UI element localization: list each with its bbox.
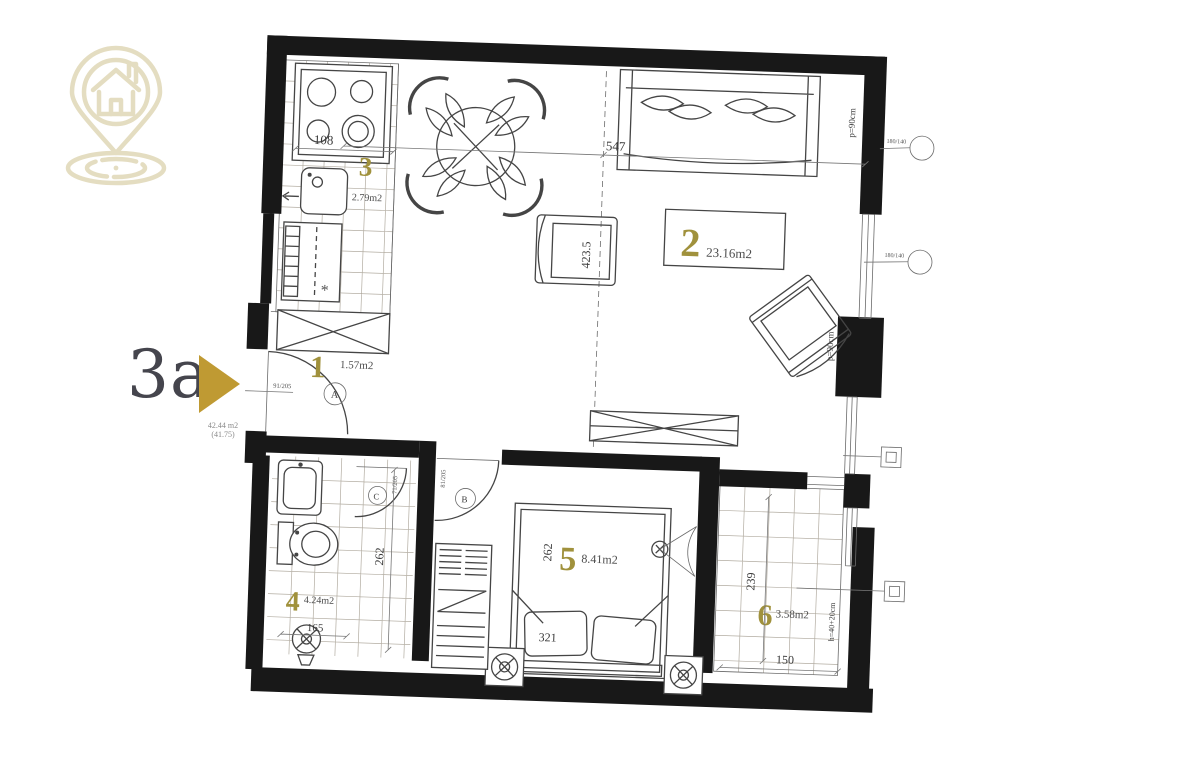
- room-4-area: 4.24m2: [304, 595, 335, 607]
- svg-text:*: *: [320, 282, 329, 299]
- window-tag-2-label: 180/140: [884, 253, 904, 260]
- dim-bed-depth: 262: [540, 543, 555, 561]
- dim-kitchen-counter: 108: [314, 132, 334, 148]
- dim-bath-width: 165: [307, 622, 324, 635]
- room-2-number: 2: [680, 220, 702, 266]
- sofa-icon: [617, 70, 820, 177]
- room-3-area: 2.79m2: [352, 192, 383, 204]
- detail-square-callout-1: [843, 446, 902, 468]
- room-5-number: 5: [559, 541, 577, 579]
- window-tag-1-label: 180/140: [886, 139, 906, 146]
- wardrobe-x-box: [277, 310, 390, 354]
- nightstand-right-icon: [664, 655, 703, 694]
- door-b-size: 81/205: [440, 469, 448, 487]
- door-c-size: 71/205: [392, 476, 400, 494]
- bath-door-arc: C 71/205: [355, 467, 407, 519]
- parapet-top-label: p=90cm: [846, 108, 857, 138]
- floor-plan-page: 3a 42.44 m2 (41.75): [0, 0, 1200, 776]
- room-2-area: 23.16m2: [706, 245, 752, 262]
- room-1-number: 1: [309, 349, 326, 385]
- parapet-right-label: p=90cm: [824, 331, 835, 361]
- bedroom-door-arc: B 81/205: [435, 458, 499, 522]
- room-4-number: 4: [285, 586, 300, 617]
- toilet-icon: [277, 522, 338, 566]
- dining-table-icon: [396, 67, 555, 226]
- room-3-number: 3: [358, 152, 373, 182]
- kitchen: *: [279, 63, 392, 304]
- room-5-area: 8.41m2: [581, 552, 618, 567]
- door-c-mark: C: [373, 491, 379, 501]
- dim-bath-depth: 262: [372, 547, 387, 565]
- door-a-mark: A: [331, 390, 339, 401]
- door-b-mark: B: [461, 494, 467, 504]
- dim-terrace-depth: 239: [743, 572, 758, 590]
- bath-sink-icon: [277, 460, 323, 516]
- bed-icon: [509, 503, 671, 678]
- dim-terrace-width: 150: [776, 652, 794, 667]
- kitchen-sink-icon: [282, 167, 348, 215]
- window-tag-1-circle: [910, 136, 935, 161]
- room-1-area: 1.57m2: [340, 359, 374, 372]
- nightstand-left-icon: [485, 647, 524, 686]
- living-room: 2 23.16m2: [389, 62, 866, 450]
- room-6-area: 3.58m2: [775, 608, 809, 621]
- dim-living-width: 547: [606, 138, 627, 154]
- tv-cabinet-icon: [590, 411, 739, 446]
- floor-plan-drawing: * A 91/205: [0, 0, 1200, 776]
- side-chair-icon: [535, 215, 617, 286]
- terrace-parapet-label: h=40+20cm: [827, 602, 837, 642]
- terrace-tiles: [714, 485, 844, 675]
- dim-bed-width: 321: [538, 630, 556, 645]
- window-tag-2-circle: [908, 250, 933, 275]
- room-2-label-box: 2 23.16m2: [664, 209, 786, 269]
- door-a-size: 91/205: [273, 383, 291, 391]
- appliance-column-icon: *: [281, 222, 342, 302]
- dim-living-depth: 423.5: [579, 241, 594, 268]
- hall-wardrobe-icon: [432, 543, 492, 669]
